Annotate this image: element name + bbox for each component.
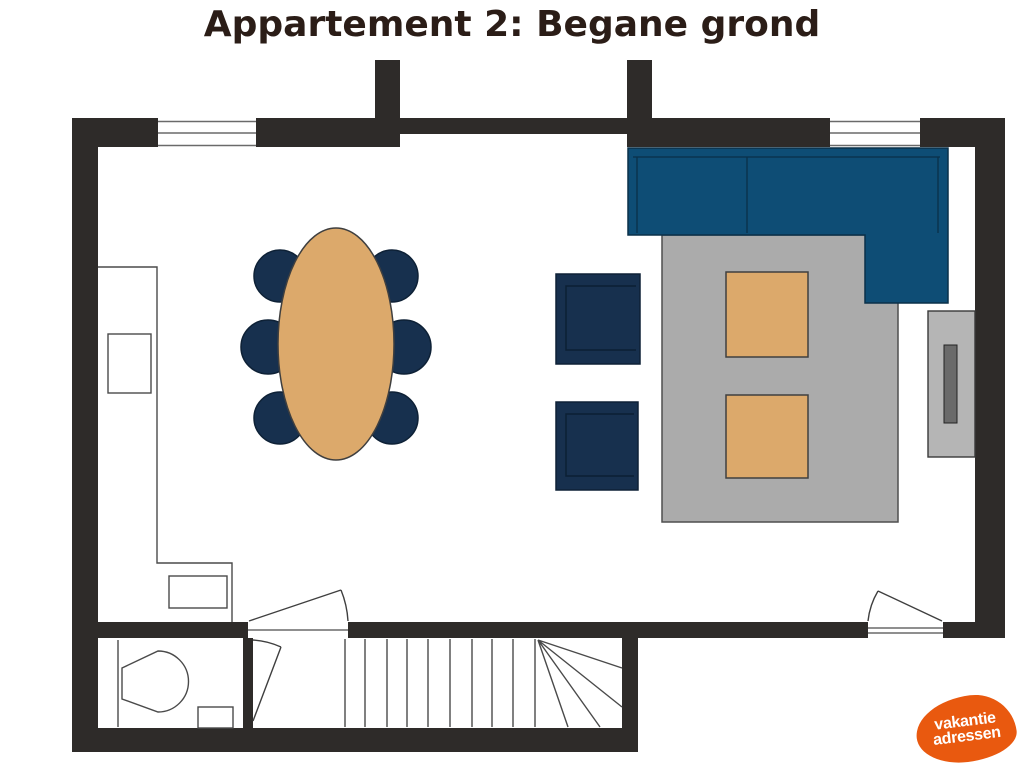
- window-top-left: [158, 118, 256, 147]
- coffee-table: [726, 395, 808, 478]
- stair-winders: [538, 640, 622, 727]
- wall-left: [72, 118, 98, 752]
- counter-edge: [98, 267, 232, 622]
- wall-outer-bottom: [72, 728, 638, 752]
- coffee-table: [726, 272, 808, 357]
- wall-top-middle: [400, 118, 627, 134]
- toilet-room: [118, 640, 233, 728]
- stair-treads: [345, 639, 535, 727]
- hand-basin: [198, 707, 233, 728]
- door-toilet: [253, 640, 281, 721]
- window-top-right: [830, 118, 920, 147]
- wall-stair-right: [622, 638, 638, 752]
- wall-top-right: [627, 118, 1005, 147]
- doors: [248, 590, 943, 721]
- kitchen-counter: [98, 267, 232, 622]
- wall-chimney-right: [627, 60, 652, 120]
- floorplan: [0, 0, 1024, 768]
- toilet: [122, 651, 188, 712]
- staircase: [345, 639, 622, 727]
- armchair: [556, 274, 640, 364]
- living-area: [556, 148, 975, 522]
- floorplan-page: Appartement 2: Begane grond: [0, 0, 1024, 768]
- wall-bottom-a: [72, 622, 248, 638]
- wall-bottom-c: [943, 622, 1005, 638]
- dining-set: [241, 228, 431, 460]
- oval-dining-table: [278, 228, 394, 460]
- door-hall-living: [248, 590, 348, 630]
- kitchen-sink: [108, 334, 151, 393]
- kitchen-appliance: [169, 576, 227, 608]
- wall-chimney-left: [375, 60, 400, 120]
- tv-cabinet: [928, 311, 975, 457]
- wall-bottom-b: [348, 622, 868, 638]
- door-living-right: [868, 591, 943, 633]
- wall-right: [975, 118, 1005, 638]
- armchair: [556, 402, 638, 490]
- wall-toilet-divider: [243, 638, 253, 728]
- tv: [944, 345, 957, 423]
